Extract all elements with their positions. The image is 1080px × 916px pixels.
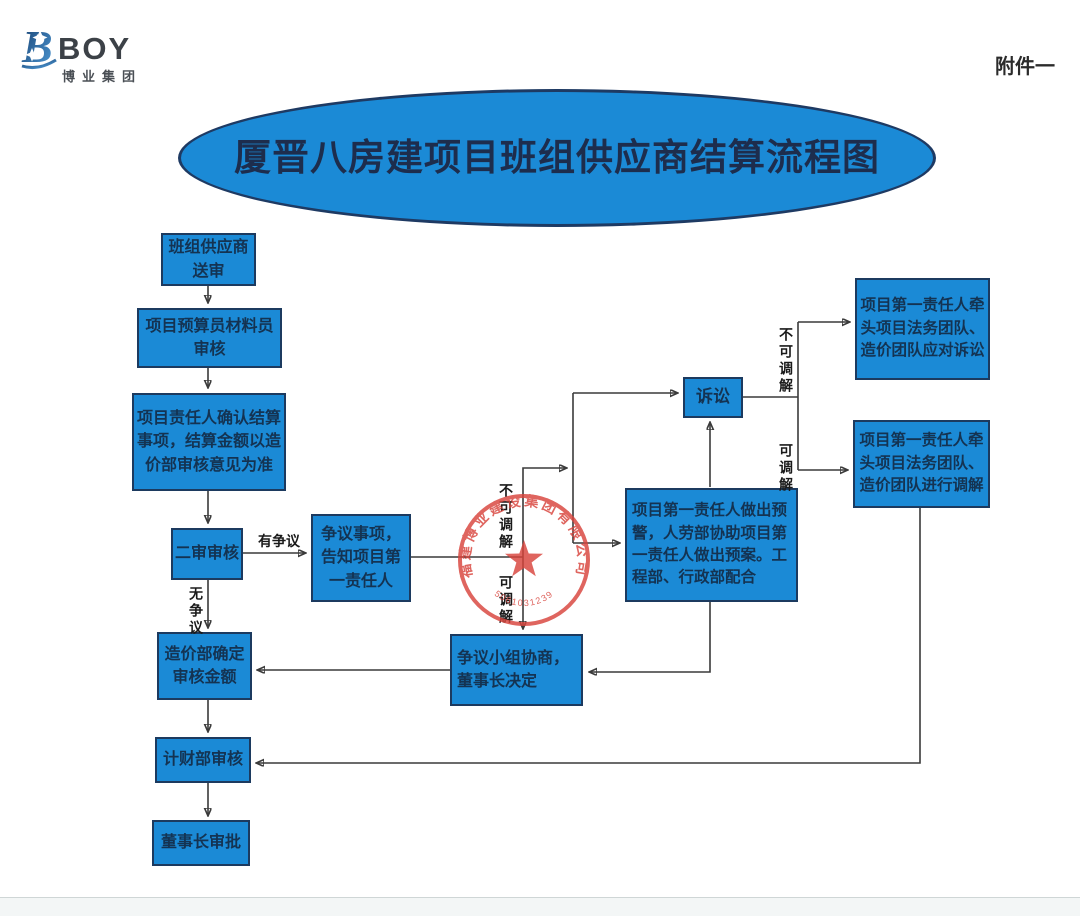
node-respond-litigation: 项目第一责任人牵 头项目法务团队、 造价团队应对诉讼 [855, 278, 990, 380]
node-second-review: 二审审核 [171, 528, 243, 580]
attachment-label: 附件一 [995, 50, 1055, 79]
connector-warning-to-group [590, 602, 710, 672]
logo-subtitle: 博业集团 [62, 66, 142, 85]
edge-label-not-mediable-left: 不可调解 [496, 483, 516, 551]
node-budget-material-review: 项目预算员材料员 审核 [137, 308, 282, 368]
node-litigation: 诉讼 [683, 377, 743, 418]
connector-junction-up [523, 468, 566, 557]
title-ellipse: 厦晋八房建项目班组供应商结算流程图 [178, 89, 936, 227]
edge-label-not-mediable-right: 不可调解 [776, 327, 796, 395]
node-confirm-settlement: 项目责任人确认结算 事项，结算金额以造 价部审核意见为准 [132, 393, 286, 491]
edge-label-has-dispute: 有争议 [258, 531, 300, 551]
edge-label-mediable-left: 可调解 [496, 575, 516, 626]
edge-label-no-dispute: 无争议 [186, 586, 206, 637]
node-cost-dept-amount: 造价部确定 审核金额 [157, 632, 252, 700]
edge-label-mediable-right: 可调解 [776, 443, 796, 494]
node-dispute-notify: 争议事项， 告知项目第 一责任人 [311, 514, 411, 602]
node-chairman-approval: 董事长审批 [152, 820, 250, 866]
page-bottom-edge [0, 897, 1080, 916]
node-submit: 班组供应商 送审 [161, 233, 256, 286]
node-finance-review: 计财部审核 [155, 737, 251, 783]
node-dispute-group: 争议小组协商， 董事长决定 [450, 634, 583, 706]
node-conduct-mediation: 项目第一责任人牵 头项目法务团队、 造价团队进行调解 [853, 420, 990, 508]
company-logo: B BOY [20, 24, 170, 72]
page-title: 厦晋八房建项目班组供应商结算流程图 [234, 127, 880, 181]
node-warning-plan: 项目第一责任人做出预 警，人劳部协助项目第 一责任人做出预案。工 程部、行政部配… [625, 488, 798, 602]
logo-brand-text: BOY [58, 31, 131, 66]
